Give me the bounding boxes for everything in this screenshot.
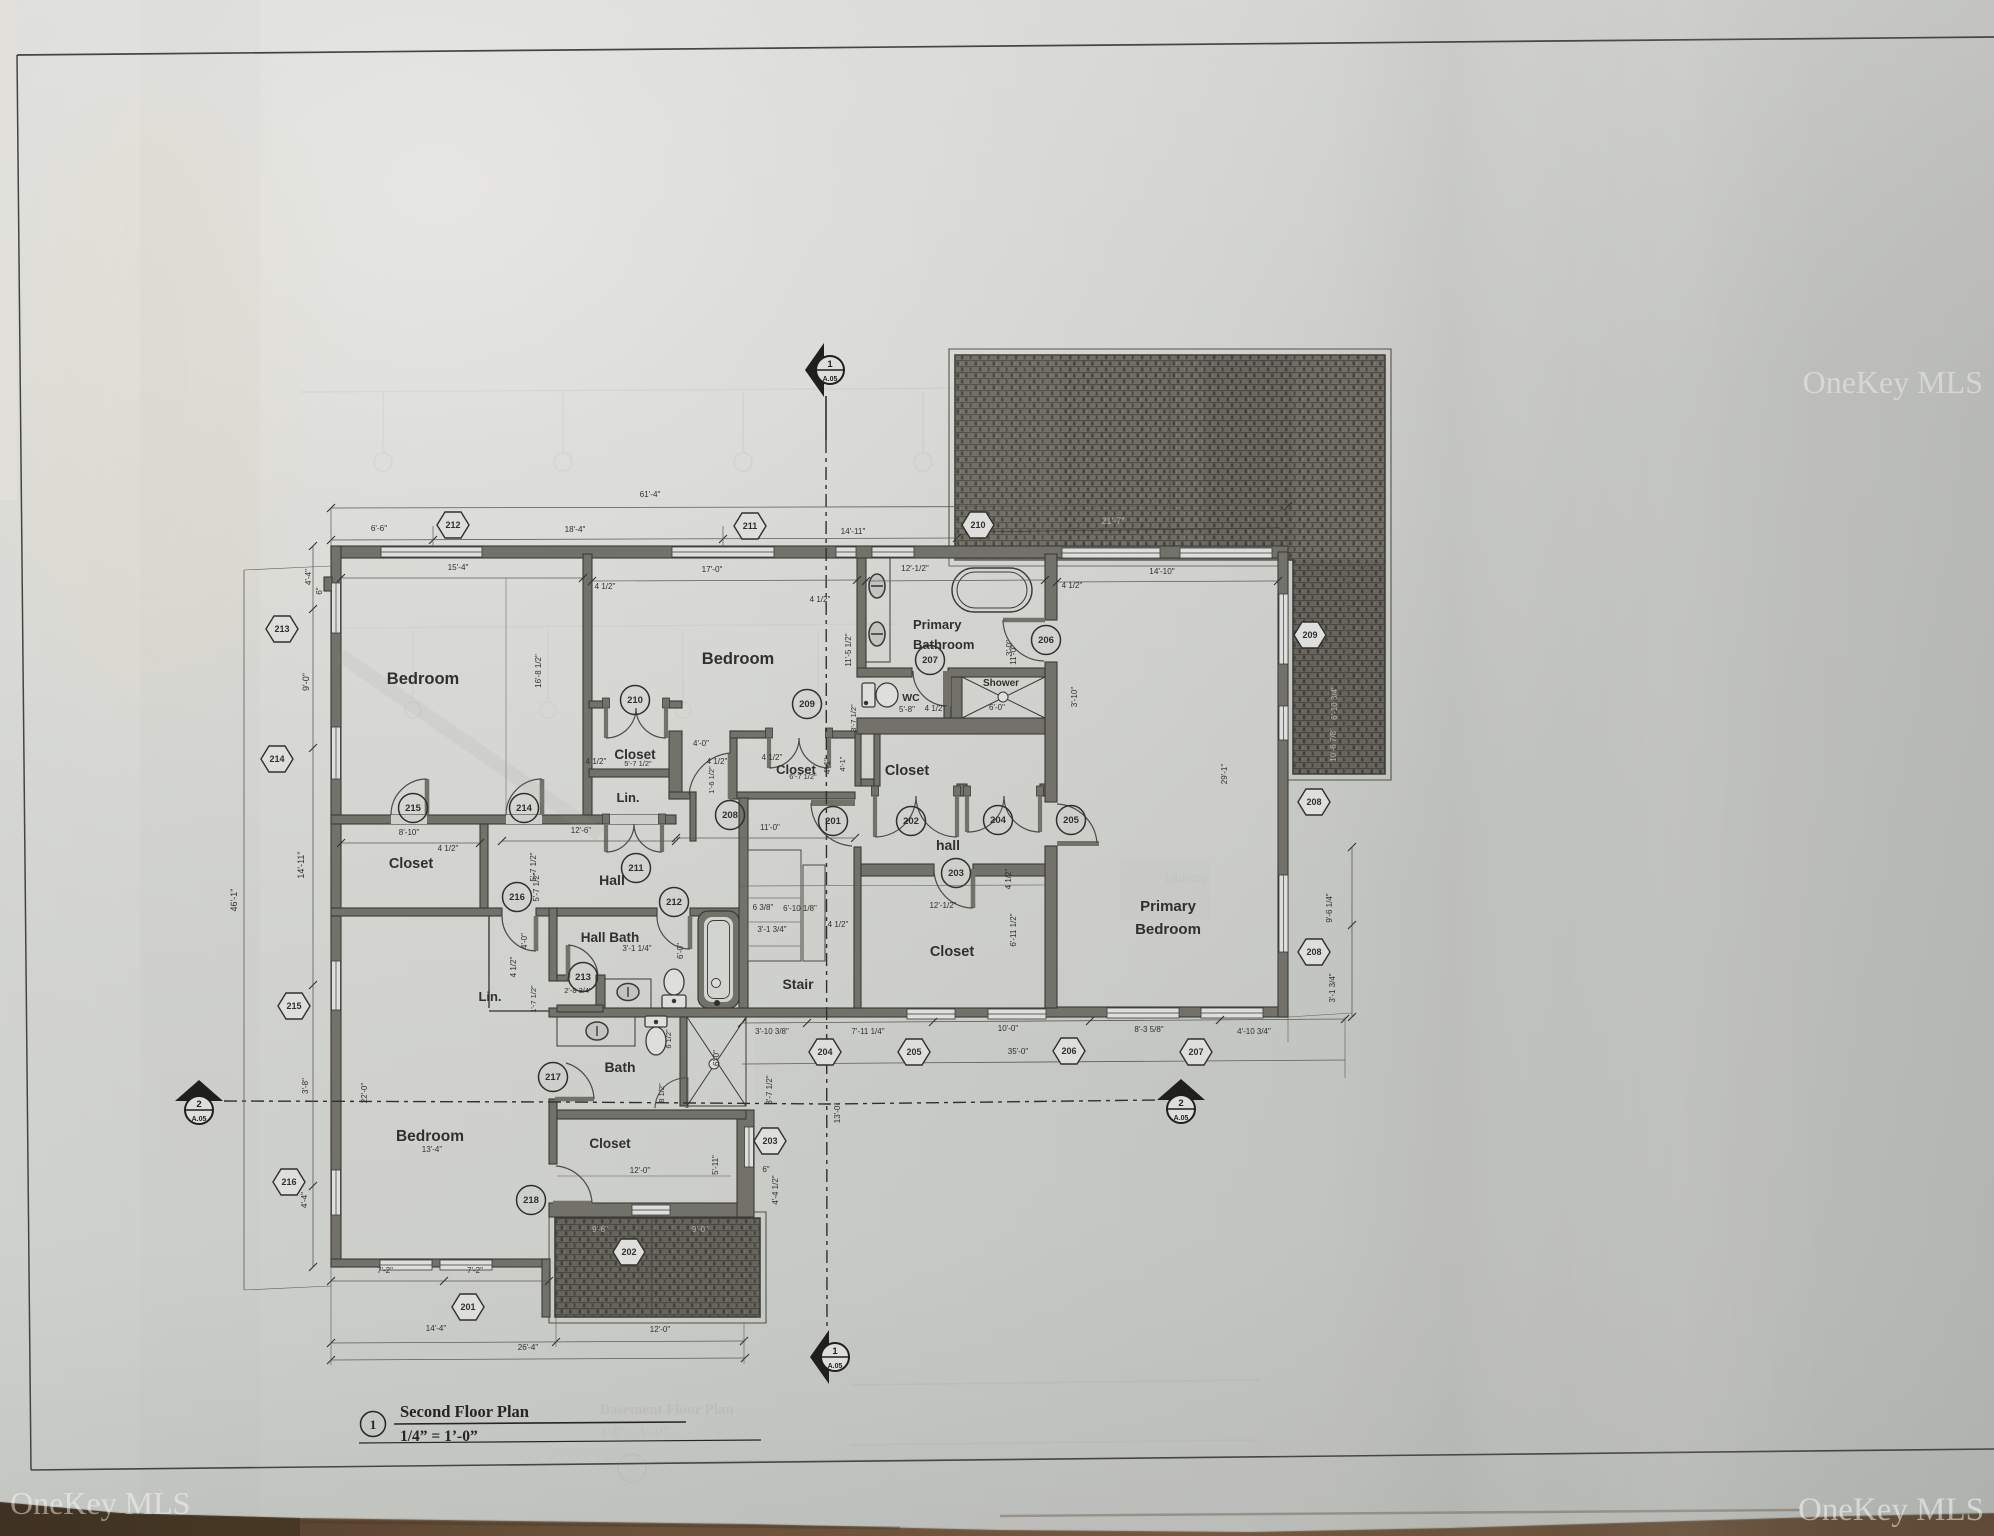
svg-text:OneKey MLS: OneKey MLS <box>1803 364 1983 400</box>
svg-text:OneKey MLS: OneKey MLS <box>1798 1492 1984 1528</box>
svg-text:OneKey MLS: OneKey MLS <box>10 1485 190 1521</box>
